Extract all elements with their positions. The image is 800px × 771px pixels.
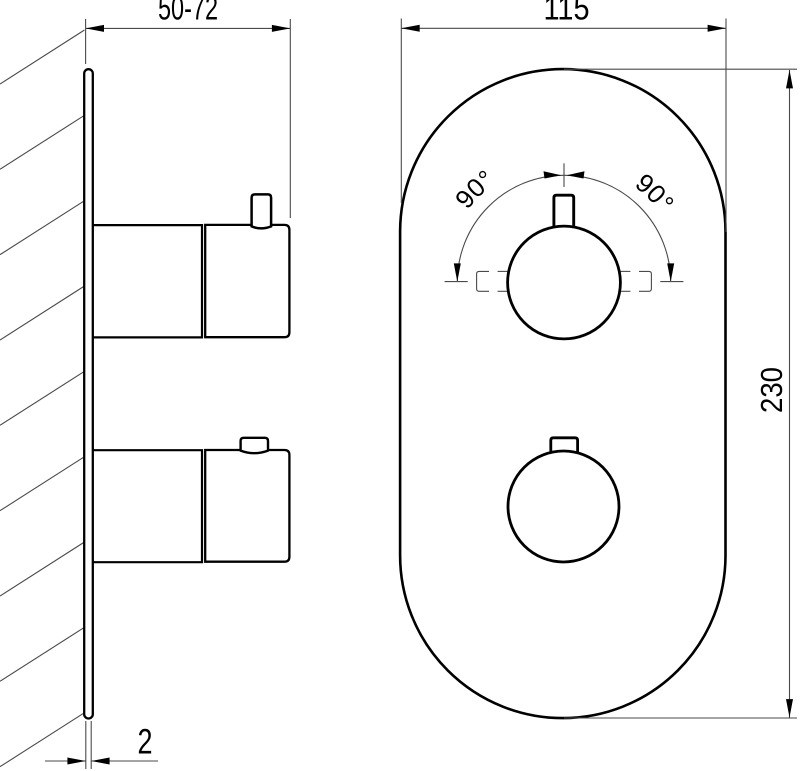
svg-text:115: 115	[544, 0, 590, 27]
svg-text:50-72: 50-72	[158, 0, 218, 27]
svg-text:2: 2	[138, 723, 153, 762]
svg-text:230: 230	[754, 367, 789, 413]
